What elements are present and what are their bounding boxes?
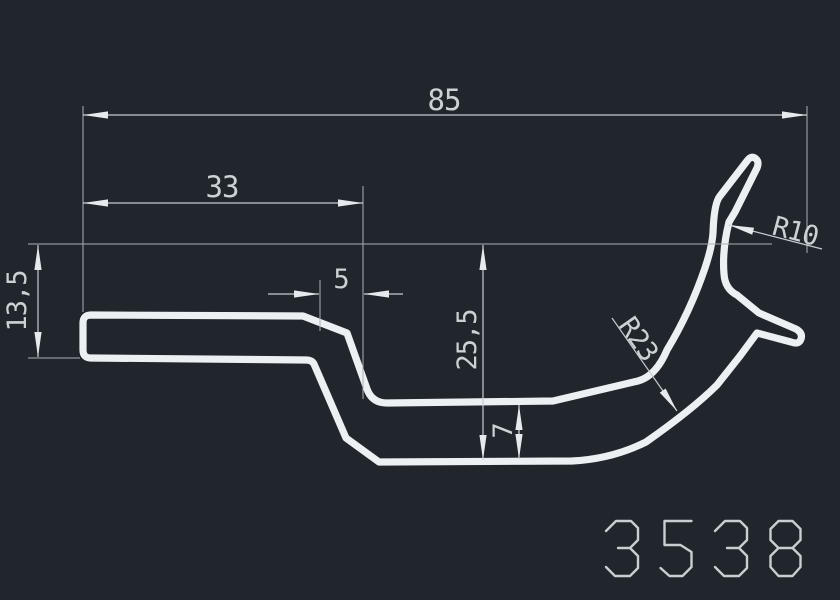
radius-leader-r23: R23 [612,311,677,411]
part-number-digit [606,521,638,576]
dimension-wall-thickness: 7 [488,405,519,459]
dimension-left-width: 33 [83,170,363,204]
part-number-digit [715,521,747,576]
dim-label-r23: R23 [612,311,664,366]
dimension-right-height: 25,5 [452,245,483,460]
dim-label-5: 5 [333,264,348,295]
dimension-step-width: 5 [268,264,403,295]
radius-leader-r10: R10 [729,211,822,253]
dim-label-r10: R10 [769,211,821,253]
dim-label-33: 33 [206,170,239,204]
dim-label-7: 7 [488,423,519,438]
dim-label-85: 85 [428,83,461,117]
dim-label-25-5: 25,5 [452,309,483,370]
dim-label-13-5: 13,5 [2,270,33,331]
part-number-digit [771,521,801,576]
drawing-canvas: 85 33 5 13,5 25,5 7 R10 R23 [0,0,840,600]
part-number-digit [661,521,692,576]
dimension-total-width: 85 [83,83,807,117]
technical-drawing: 85 33 5 13,5 25,5 7 R10 R23 [0,0,840,600]
dimension-left-height: 13,5 [2,245,38,357]
part-number-glyphs [606,521,801,576]
